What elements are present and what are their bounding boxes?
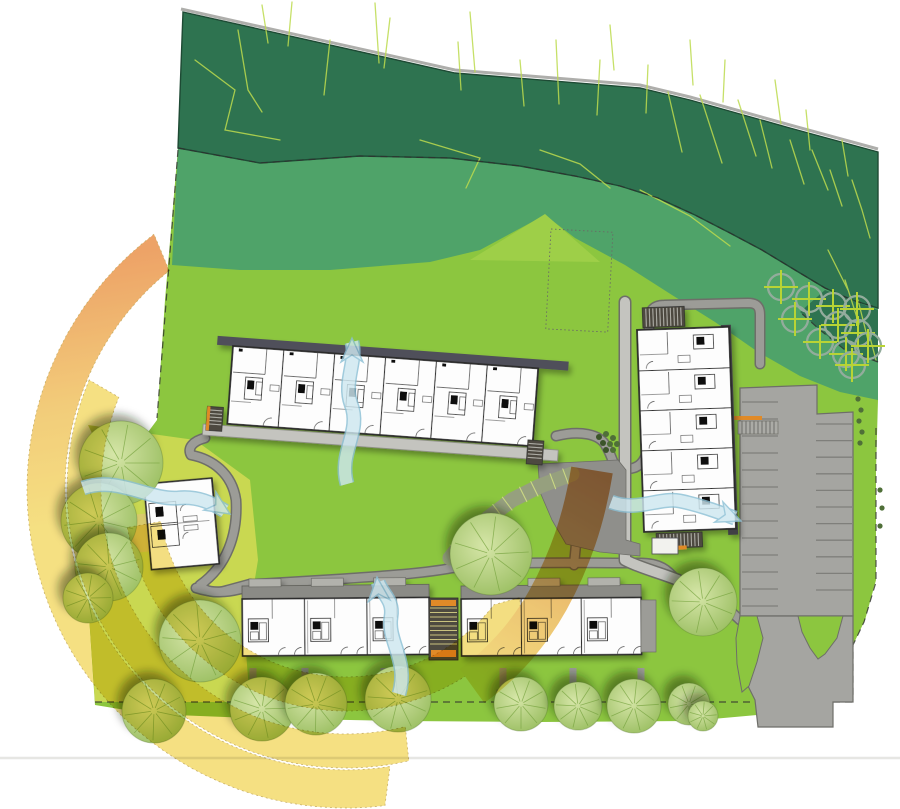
- pedestrian-crossing-steps: [738, 421, 778, 434]
- tree-canopy: [688, 701, 718, 731]
- service-core: [247, 380, 255, 389]
- service-core: [399, 391, 407, 400]
- site-plan-canvas: Residential development site plan with s…: [0, 0, 900, 809]
- shrub: [859, 429, 864, 434]
- shrub: [610, 447, 616, 453]
- service-core: [699, 417, 707, 425]
- shrub: [858, 407, 863, 412]
- service-core: [155, 506, 164, 517]
- site-plan-drawing: Residential development site plan with s…: [0, 0, 900, 809]
- service-core: [375, 621, 383, 629]
- bench: [652, 538, 678, 554]
- tree-canopy: [607, 679, 661, 733]
- shrub: [603, 447, 609, 453]
- shrub: [600, 440, 606, 446]
- service-core: [589, 621, 597, 629]
- service-core: [313, 621, 321, 629]
- service-core: [501, 399, 509, 408]
- wall-pier: [239, 348, 243, 351]
- rear-yard-gate: [311, 578, 343, 586]
- shrub: [610, 435, 616, 441]
- tree-canopy: [554, 682, 602, 730]
- row-end-terrace: [641, 600, 656, 652]
- shrub: [607, 441, 613, 447]
- wall-pier: [442, 363, 446, 366]
- wall-pier: [391, 360, 395, 363]
- shrub: [877, 487, 882, 492]
- shrub: [614, 441, 620, 447]
- service-core: [700, 457, 708, 465]
- rear-yard-gate: [249, 579, 281, 587]
- wall-pier: [289, 352, 293, 355]
- shrub: [856, 418, 861, 423]
- service-core: [698, 377, 706, 385]
- service-core: [250, 622, 258, 630]
- shrub: [603, 431, 609, 437]
- wall-pier: [493, 367, 497, 370]
- shrub: [857, 440, 862, 445]
- shrub: [596, 434, 602, 440]
- shrub: [879, 505, 884, 510]
- service-core: [450, 395, 458, 404]
- rear-yard-gate: [588, 578, 620, 586]
- service-core: [696, 337, 704, 345]
- shrub: [855, 396, 860, 401]
- tree-canopy: [669, 568, 737, 636]
- entrance-accent-bar: [730, 416, 762, 420]
- service-core: [298, 384, 306, 393]
- shrub: [877, 523, 882, 528]
- tree-canopy: [450, 513, 532, 595]
